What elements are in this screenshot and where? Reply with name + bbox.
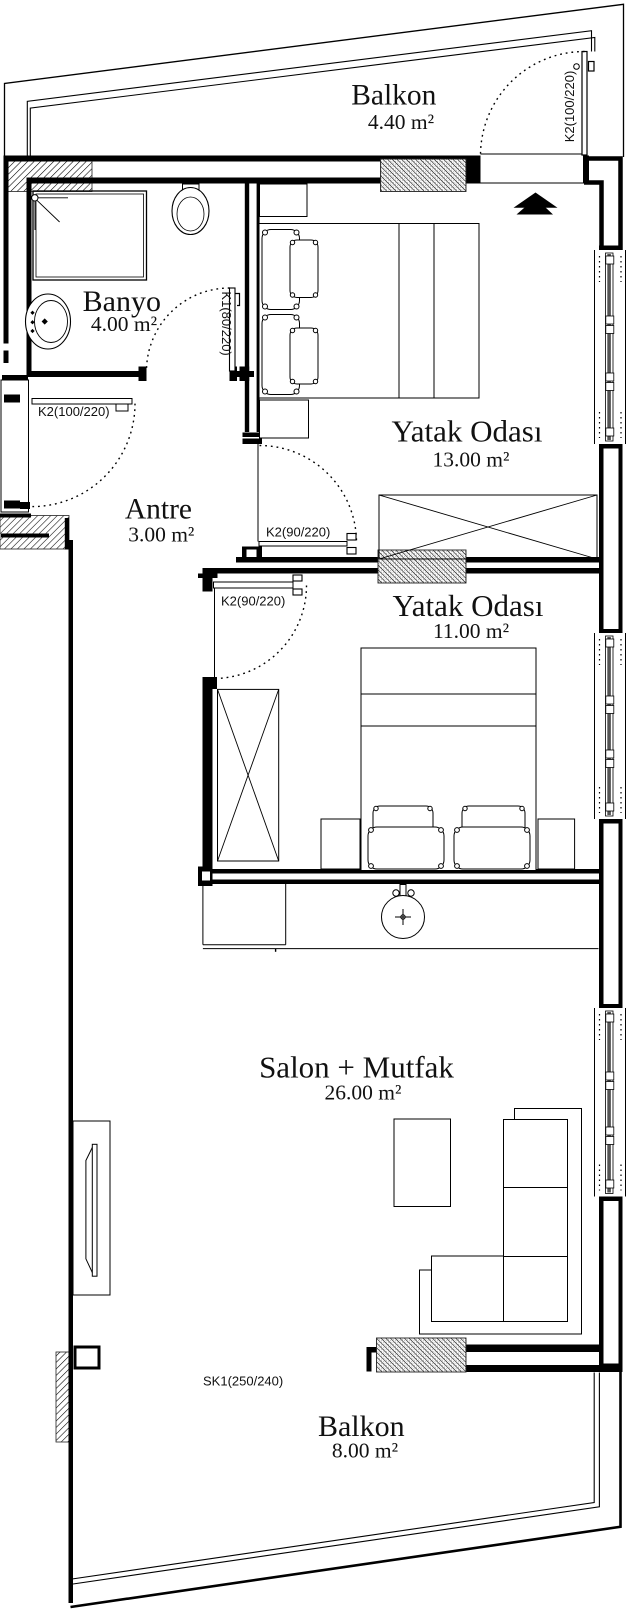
svg-text:Yatak Odası: Yatak Odası	[392, 414, 543, 449]
svg-text:K2(100/220): K2(100/220)	[38, 404, 110, 419]
svg-text:K2(90/220): K2(90/220)	[221, 594, 285, 609]
svg-text:K2(100/220): K2(100/220)	[562, 71, 577, 143]
svg-text:Salon + Mutfak: Salon + Mutfak	[259, 1050, 454, 1085]
svg-text:Yatak Odası: Yatak Odası	[393, 588, 544, 623]
svg-text:SK1(250/240): SK1(250/240)	[203, 1374, 283, 1389]
svg-text:Antre: Antre	[125, 494, 192, 526]
svg-text:K1(80/220): K1(80/220)	[219, 291, 234, 355]
svg-text:4.00 m²: 4.00 m²	[91, 312, 157, 336]
svg-text:26.00 m²: 26.00 m²	[325, 1081, 402, 1105]
svg-text:4.40 m²: 4.40 m²	[368, 110, 434, 134]
svg-text:13.00 m²: 13.00 m²	[433, 448, 510, 472]
svg-text:11.00 m²: 11.00 m²	[433, 619, 509, 643]
svg-text:Balkon: Balkon	[351, 80, 436, 112]
svg-text:8.00 m²: 8.00 m²	[332, 1438, 398, 1462]
svg-text:3.00 m²: 3.00 m²	[128, 523, 194, 547]
svg-text:K2(90/220): K2(90/220)	[266, 525, 330, 540]
